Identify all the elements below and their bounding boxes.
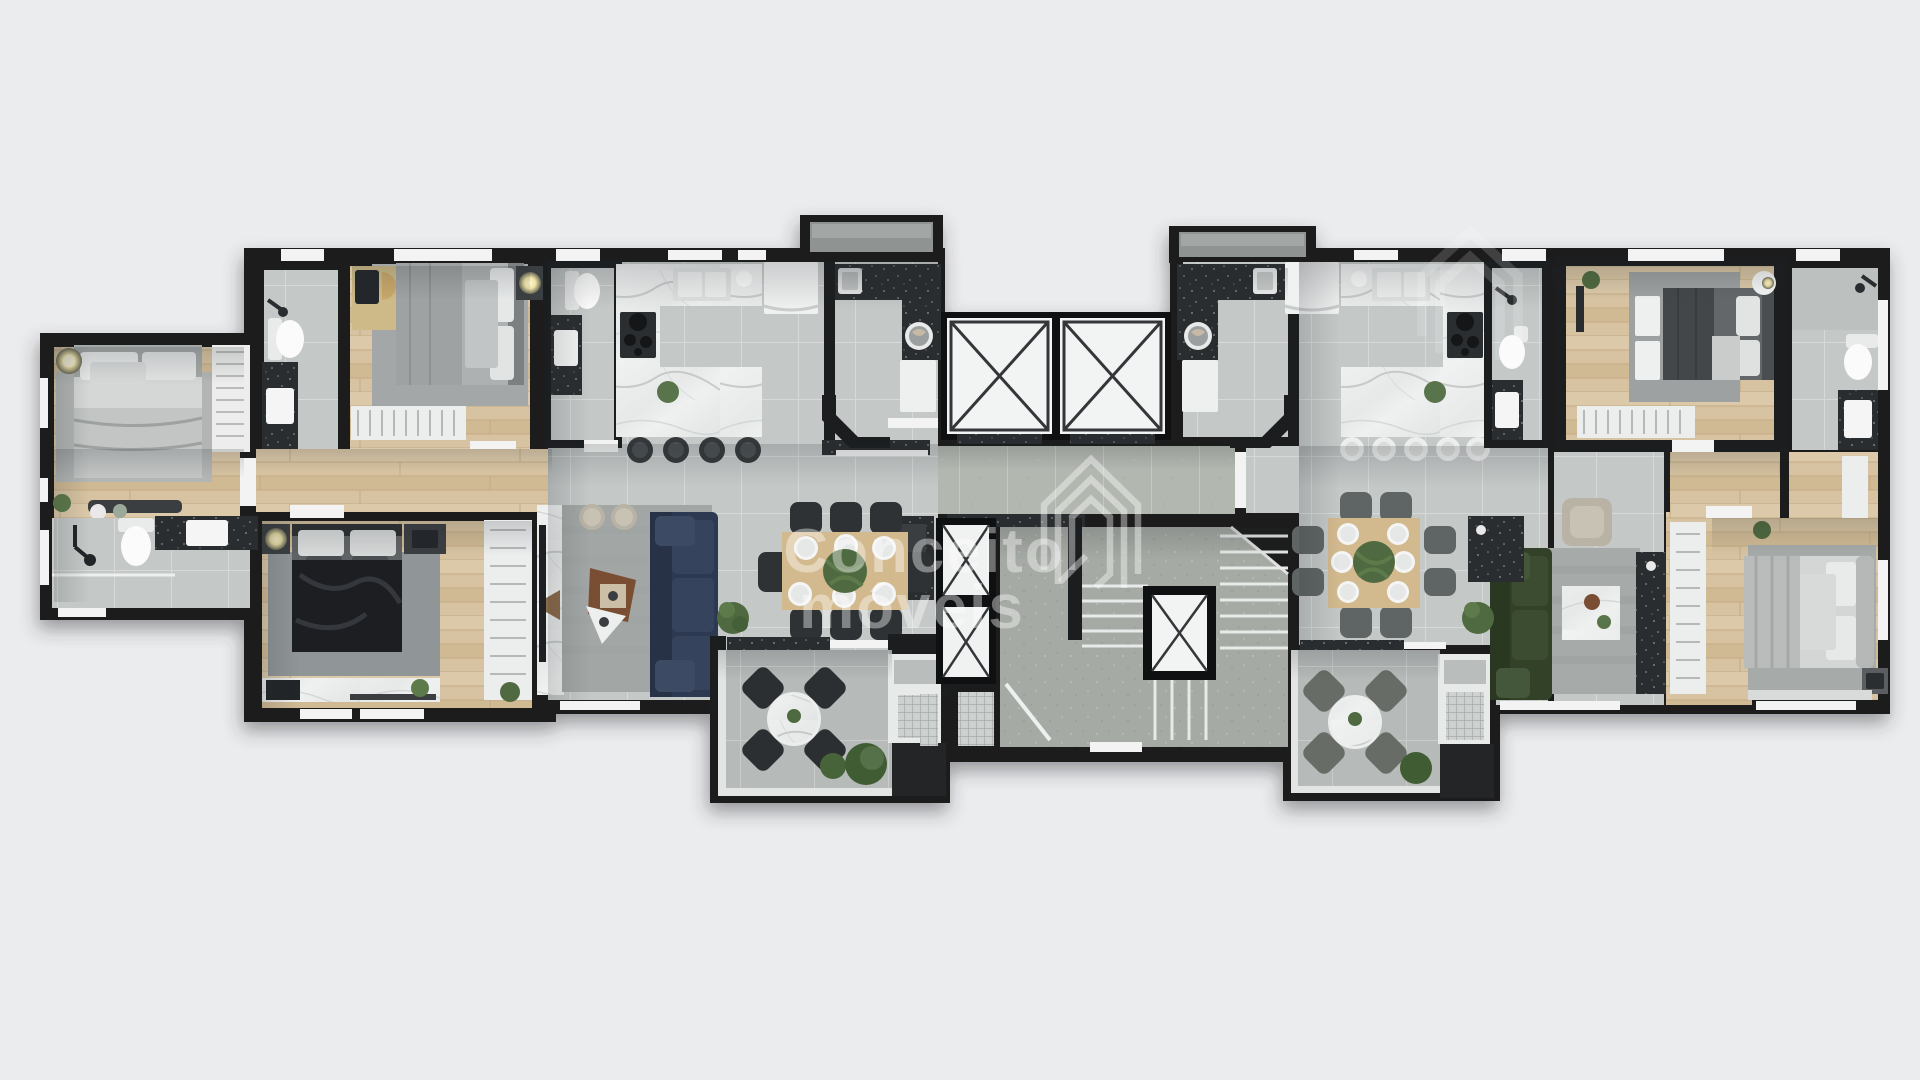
svg-text:móveis: móveis (799, 573, 1025, 642)
